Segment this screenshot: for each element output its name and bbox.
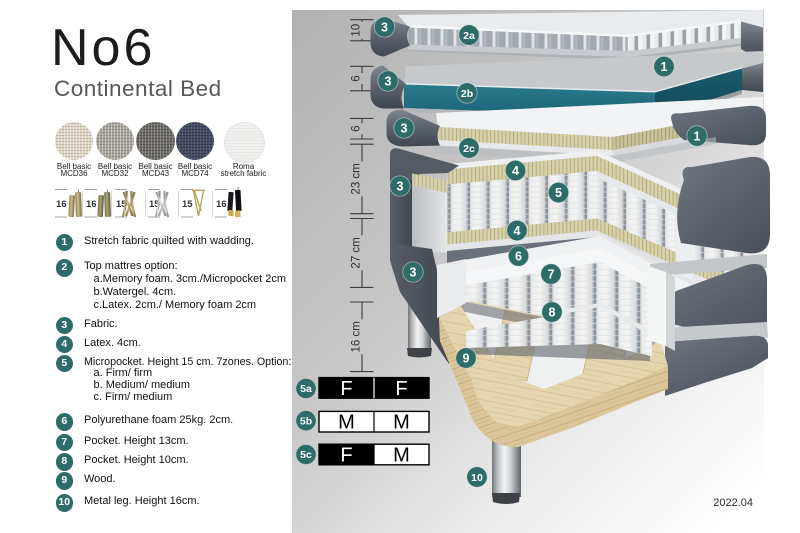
svg-text:27 cm: 27 cm	[351, 237, 363, 268]
svg-text:F: F	[395, 378, 407, 400]
svg-text:10: 10	[351, 24, 363, 37]
svg-text:4: 4	[512, 164, 519, 178]
svg-text:8: 8	[549, 306, 556, 320]
svg-text:F: F	[340, 378, 352, 400]
svg-text:1: 1	[661, 60, 668, 74]
svg-text:23 cm: 23 cm	[351, 163, 363, 194]
svg-text:5a: 5a	[300, 383, 312, 395]
svg-text:2c: 2c	[463, 143, 475, 155]
svg-text:M: M	[338, 412, 355, 434]
svg-text:5b: 5b	[300, 415, 312, 427]
svg-text:4: 4	[514, 224, 521, 238]
svg-text:3: 3	[410, 266, 417, 280]
svg-text:3: 3	[401, 122, 408, 136]
svg-text:F: F	[340, 444, 352, 466]
svg-text:5c: 5c	[300, 449, 312, 461]
svg-text:2022.04: 2022.04	[713, 497, 753, 509]
svg-text:6: 6	[515, 250, 522, 264]
svg-text:2b: 2b	[461, 88, 473, 100]
svg-text:M: M	[393, 412, 410, 434]
svg-text:3: 3	[381, 21, 388, 35]
svg-text:7: 7	[548, 268, 555, 282]
svg-text:10: 10	[471, 472, 483, 484]
svg-text:6: 6	[351, 125, 363, 131]
svg-text:6: 6	[351, 75, 363, 81]
svg-text:1: 1	[694, 130, 701, 144]
svg-text:16 cm: 16 cm	[351, 321, 363, 352]
svg-text:M: M	[393, 444, 410, 466]
svg-text:3: 3	[397, 180, 404, 194]
svg-text:5: 5	[555, 186, 562, 200]
svg-text:3: 3	[385, 75, 392, 89]
svg-text:2a: 2a	[463, 30, 475, 42]
svg-text:9: 9	[463, 352, 470, 366]
